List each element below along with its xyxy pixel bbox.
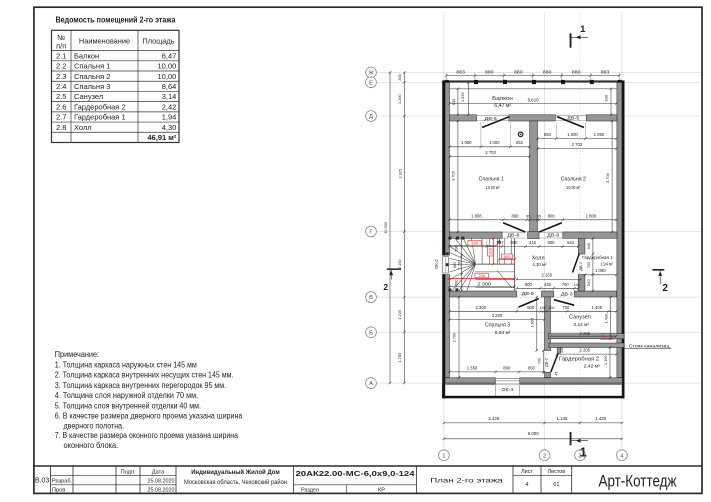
svg-text:4,30 м²: 4,30 м² [532, 262, 546, 267]
svg-text:46,91 м²: 46,91 м² [147, 133, 176, 142]
svg-text:1: 1 [580, 24, 586, 35]
svg-text:700: 700 [471, 241, 478, 246]
svg-text:820: 820 [488, 247, 493, 254]
svg-text:880: 880 [514, 70, 523, 75]
svg-text:2.3: 2.3 [56, 72, 66, 81]
svg-text:2. Толщина каркаса внутренних: 2. Толщина каркаса внутренних несущих ст… [55, 371, 234, 380]
svg-text:8,64 м²: 8,64 м² [495, 330, 511, 336]
svg-text:Спальня 3: Спальня 3 [74, 82, 110, 91]
svg-text:Спальня 3: Спальня 3 [485, 323, 510, 329]
svg-text:3.425: 3.425 [488, 416, 500, 421]
svg-text:2,42 м²: 2,42 м² [584, 363, 601, 369]
svg-text:Е: Е [369, 80, 373, 86]
svg-text:1: 1 [442, 453, 445, 459]
svg-text:10,00: 10,00 [158, 72, 177, 81]
svg-text:Балкон: Балкон [492, 96, 513, 102]
svg-text:880: 880 [543, 70, 552, 75]
svg-text:700: 700 [562, 305, 570, 310]
svg-text:оконного блока.: оконного блока. [64, 441, 119, 450]
svg-text:1. Толщина каркаса наружных ст: 1. Толщина каркаса наружных стен 145 мм [55, 360, 197, 369]
svg-text:1.200: 1.200 [397, 94, 402, 105]
svg-text:2: 2 [543, 453, 546, 459]
svg-text:2 165: 2 165 [542, 273, 553, 278]
svg-text:800: 800 [548, 240, 556, 245]
svg-text:3. Толщина каркаса внутренних: 3. Толщина каркаса внутренних перегородо… [55, 381, 226, 390]
svg-text:61: 61 [553, 482, 559, 488]
svg-text:300: 300 [397, 73, 402, 80]
svg-text:830: 830 [603, 94, 608, 101]
svg-text:Гардеробная 1: Гардеробная 1 [74, 113, 126, 122]
svg-text:ДВ-5: ДВ-5 [567, 115, 580, 120]
svg-text:1.780: 1.780 [458, 260, 462, 269]
svg-text:1 550: 1 550 [467, 366, 478, 371]
svg-text:95: 95 [526, 213, 531, 218]
svg-text:3.925: 3.925 [398, 169, 403, 179]
svg-text:Дата: Дата [152, 469, 165, 475]
svg-text:1.145: 1.145 [557, 416, 569, 421]
svg-text:1.090: 1.090 [595, 268, 606, 273]
svg-text:2 300: 2 300 [476, 305, 487, 310]
svg-text:Спальня 1: Спальня 1 [479, 177, 504, 183]
svg-text:590: 590 [455, 280, 459, 286]
svg-text:680: 680 [453, 262, 457, 268]
svg-text:Примечание:: Примечание: [55, 350, 99, 359]
svg-text:425: 425 [544, 282, 552, 287]
svg-text:дверного полотна.: дверного полотна. [64, 422, 125, 431]
svg-text:25.08.2020: 25.08.2020 [148, 488, 175, 494]
svg-text:255: 255 [560, 347, 564, 353]
svg-text:ДВ-2: ДВ-2 [544, 357, 549, 367]
svg-text:ДВ-2: ДВ-2 [578, 261, 583, 271]
svg-text:2 300: 2 300 [477, 281, 491, 286]
svg-text:6. В качестве размера дверного: 6. В качестве размера дверного проема ук… [55, 411, 243, 420]
svg-text:2.8: 2.8 [56, 123, 66, 132]
svg-text:План 2-го этажа: План 2-го этажа [430, 477, 503, 484]
svg-text:Гардеробная 2: Гардеробная 2 [559, 357, 599, 363]
svg-text:Спальня 1: Спальня 1 [74, 62, 110, 71]
svg-text:Балкон: Балкон [74, 51, 99, 60]
svg-text:2: 2 [383, 282, 388, 292]
svg-text:1.220: 1.220 [397, 309, 402, 320]
svg-text:2,42: 2,42 [162, 102, 177, 111]
svg-text:6,47: 6,47 [162, 51, 177, 60]
svg-text:Холл: Холл [74, 123, 92, 132]
svg-text:45: 45 [555, 372, 559, 376]
svg-text:В: В [369, 295, 373, 301]
svg-text:1,94 м²: 1,94 м² [600, 262, 613, 267]
svg-text:2 703: 2 703 [485, 150, 496, 155]
svg-text:2: 2 [662, 283, 668, 294]
svg-text:ДВ-3: ДВ-3 [561, 291, 574, 296]
svg-text:Арт-Коттедж: Арт-Коттедж [599, 472, 677, 490]
svg-text:2.7: 2.7 [56, 113, 66, 122]
svg-text:2.5: 2.5 [56, 92, 66, 101]
svg-text:Московская область, Чеховский: Московская область, Чеховский район [184, 479, 287, 486]
svg-text:Наименование: Наименование [79, 36, 130, 45]
svg-text:540: 540 [587, 243, 591, 249]
svg-text:Лист: Лист [521, 469, 533, 475]
svg-text:883: 883 [456, 70, 465, 75]
svg-text:6,47 м²: 6,47 м² [494, 103, 511, 109]
svg-text:ДВ-8: ДВ-8 [507, 233, 520, 238]
svg-text:2 703: 2 703 [572, 142, 583, 147]
svg-text:Гардеробная 2: Гардеробная 2 [74, 102, 126, 111]
svg-text:Санузел: Санузел [569, 315, 591, 321]
svg-text:Холл: Холл [532, 256, 545, 262]
svg-text:1 000: 1 000 [489, 140, 500, 145]
svg-text:В.03: В.03 [35, 478, 50, 485]
svg-text:4. Толщина слоя наружной отдел: 4. Толщина слоя наружной отделки 70 мм. [55, 391, 198, 400]
svg-text:800: 800 [512, 213, 520, 218]
svg-text:Спальня 2: Спальня 2 [74, 72, 110, 81]
svg-text:800: 800 [548, 213, 556, 218]
svg-text:2.4: 2.4 [56, 82, 66, 91]
svg-text:ДВ-9: ДВ-9 [547, 233, 560, 238]
svg-text:Спальня 2: Спальня 2 [561, 177, 586, 183]
svg-text:Ведомость помещений 2-го этажа: Ведомость помещений 2-го этажа [56, 14, 176, 24]
svg-text:1 050: 1 050 [594, 132, 605, 137]
svg-text:95: 95 [536, 213, 541, 218]
svg-text:1 000: 1 000 [567, 132, 578, 137]
svg-text:540: 540 [587, 279, 591, 285]
svg-text:880: 880 [572, 70, 581, 75]
svg-text:2.2: 2.2 [56, 62, 66, 71]
svg-text:100: 100 [540, 306, 546, 310]
svg-text:800: 800 [525, 282, 533, 287]
svg-text:1.035: 1.035 [460, 92, 465, 102]
svg-text:ДВ-9: ДВ-9 [522, 291, 535, 296]
svg-text:5.610: 5.610 [528, 97, 540, 102]
svg-text:Ж: Ж [368, 71, 374, 77]
svg-text:15: 15 [601, 335, 605, 339]
svg-text:140: 140 [573, 282, 580, 287]
svg-text:ОК-4: ОК-4 [501, 387, 513, 393]
svg-text:п/п: п/п [56, 41, 66, 50]
svg-text:653: 653 [544, 132, 552, 137]
svg-text:Санузел: Санузел [74, 92, 103, 101]
svg-text:700: 700 [538, 358, 542, 364]
svg-text:800: 800 [510, 240, 518, 245]
svg-text:3,14 м²: 3,14 м² [574, 322, 590, 328]
svg-text:1.405: 1.405 [592, 305, 603, 310]
svg-text:830: 830 [451, 98, 456, 105]
svg-text:10.500: 10.500 [383, 221, 388, 234]
svg-text:Раздел: Раздел [301, 487, 319, 493]
svg-text:1.855: 1.855 [530, 318, 535, 328]
svg-text:800: 800 [527, 305, 535, 310]
svg-text:Стояк канализац.: Стояк канализац. [629, 343, 671, 348]
svg-text:Площадь: Площадь [142, 36, 174, 45]
svg-text:653: 653 [516, 140, 524, 145]
svg-text:500: 500 [504, 254, 511, 259]
svg-text:2 205: 2 205 [580, 348, 591, 353]
svg-text:4: 4 [525, 482, 528, 488]
svg-text:25.08.2020: 25.08.2020 [148, 478, 175, 484]
svg-text:1.785: 1.785 [397, 353, 402, 363]
svg-text:4,30: 4,30 [162, 123, 177, 132]
svg-text:800: 800 [503, 366, 511, 371]
svg-text:2.150: 2.150 [397, 259, 402, 270]
svg-text:ДВ-6: ДВ-6 [485, 116, 498, 121]
svg-text:5. Толщина слоя внутренней отд: 5. Толщина слоя внутренней отделки 40 мм… [55, 401, 201, 410]
svg-text:517: 517 [497, 240, 505, 245]
svg-text:850: 850 [528, 366, 536, 371]
svg-text:1 050: 1 050 [461, 140, 472, 145]
svg-text:15: 15 [608, 335, 612, 339]
svg-text:6.000: 6.000 [528, 431, 540, 436]
svg-text:3,14: 3,14 [162, 92, 177, 101]
svg-text:1: 1 [580, 446, 587, 460]
svg-text:10,00 м²: 10,00 м² [486, 185, 500, 190]
svg-text:2.700: 2.700 [452, 332, 457, 343]
svg-text:Индивидуальный Жилой Дом: Индивидуальный Жилой Дом [191, 468, 280, 476]
svg-text:1 808: 1 808 [471, 213, 482, 218]
svg-text:20АК22.00-МС-6,0х9,0-124: 20АК22.00-МС-6,0х9,0-124 [296, 471, 415, 478]
svg-text:Гардеробная 1: Гардеробная 1 [582, 255, 613, 260]
svg-text:700: 700 [562, 282, 570, 287]
svg-text:КР: КР [378, 487, 385, 493]
svg-text:ОК-2: ОК-2 [434, 259, 439, 269]
svg-text:3.700: 3.700 [451, 170, 456, 181]
svg-text:2 205: 2 205 [580, 331, 591, 336]
svg-text:2.6: 2.6 [56, 102, 66, 111]
svg-text:А: А [369, 381, 373, 387]
svg-text:200: 200 [478, 273, 485, 278]
svg-text:415: 415 [529, 240, 537, 245]
svg-text:1.100: 1.100 [603, 355, 608, 366]
svg-text:Подп.: Подп. [121, 469, 136, 475]
svg-text:1 808: 1 808 [586, 213, 597, 218]
svg-text:3 200: 3 200 [492, 313, 503, 318]
svg-text:700: 700 [587, 262, 591, 268]
svg-text:1,94: 1,94 [162, 113, 177, 122]
svg-text:10,00: 10,00 [158, 62, 177, 71]
svg-text:Разраб.: Разраб. [52, 478, 73, 484]
svg-text:3.700: 3.700 [605, 172, 610, 183]
svg-text:880: 880 [485, 70, 494, 75]
svg-text:Пров.: Пров. [52, 488, 67, 494]
svg-text:2.1: 2.1 [56, 51, 66, 60]
svg-text:7. В качестве размера оконного: 7. В качестве размера оконного проема ук… [55, 431, 239, 440]
svg-text:1.430: 1.430 [595, 416, 607, 421]
svg-text:Листов: Листов [548, 469, 566, 475]
svg-text:Б: Б [369, 330, 373, 336]
svg-text:1.426: 1.426 [604, 314, 609, 324]
svg-text:100: 100 [548, 306, 554, 310]
svg-text:8,64: 8,64 [162, 82, 177, 91]
svg-text:10,00 м²: 10,00 м² [566, 185, 580, 190]
svg-text:542: 542 [567, 240, 575, 245]
svg-text:Д: Д [369, 114, 373, 120]
svg-text:883: 883 [601, 70, 610, 75]
